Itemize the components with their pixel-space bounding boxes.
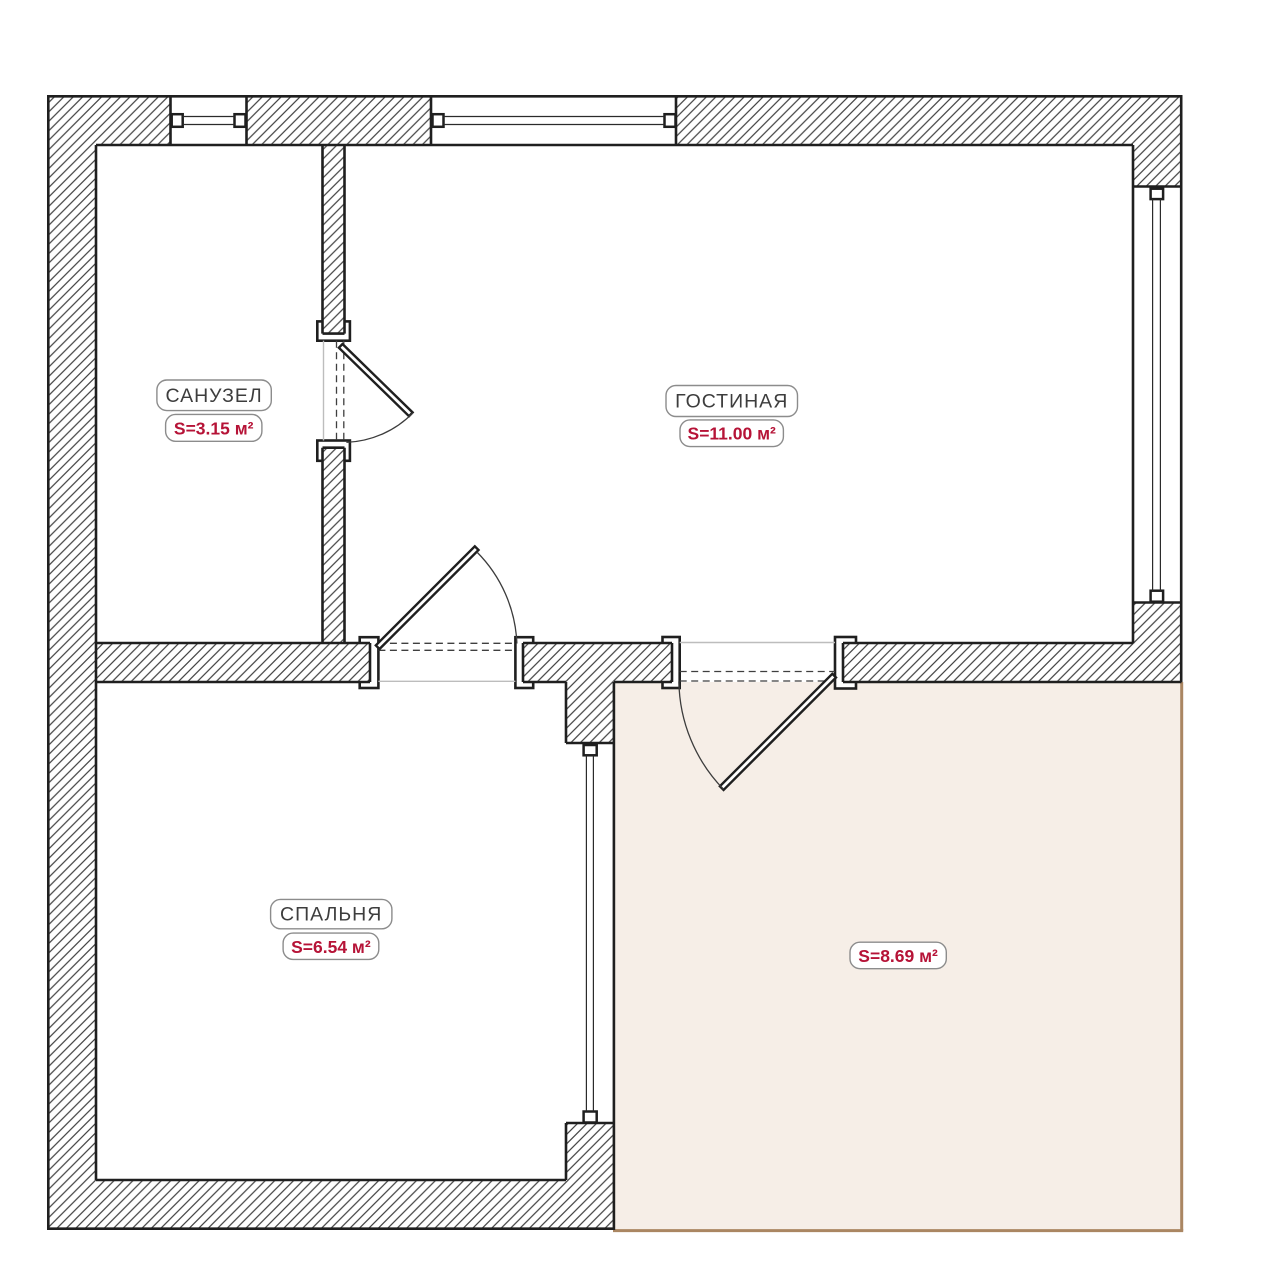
svg-text:S=3.15 м²: S=3.15 м²	[174, 418, 254, 438]
svg-text:САНУЗЕЛ: САНУЗЕЛ	[165, 385, 262, 407]
svg-text:S=8.69 м²: S=8.69 м²	[858, 946, 938, 966]
svg-text:S=6.54 м²: S=6.54 м²	[291, 937, 371, 957]
svg-text:ГОСТИНАЯ: ГОСТИНАЯ	[675, 391, 788, 413]
svg-text:S=11.00 м²: S=11.00 м²	[688, 424, 777, 444]
svg-text:СПАЛЬНЯ: СПАЛЬНЯ	[280, 904, 382, 926]
